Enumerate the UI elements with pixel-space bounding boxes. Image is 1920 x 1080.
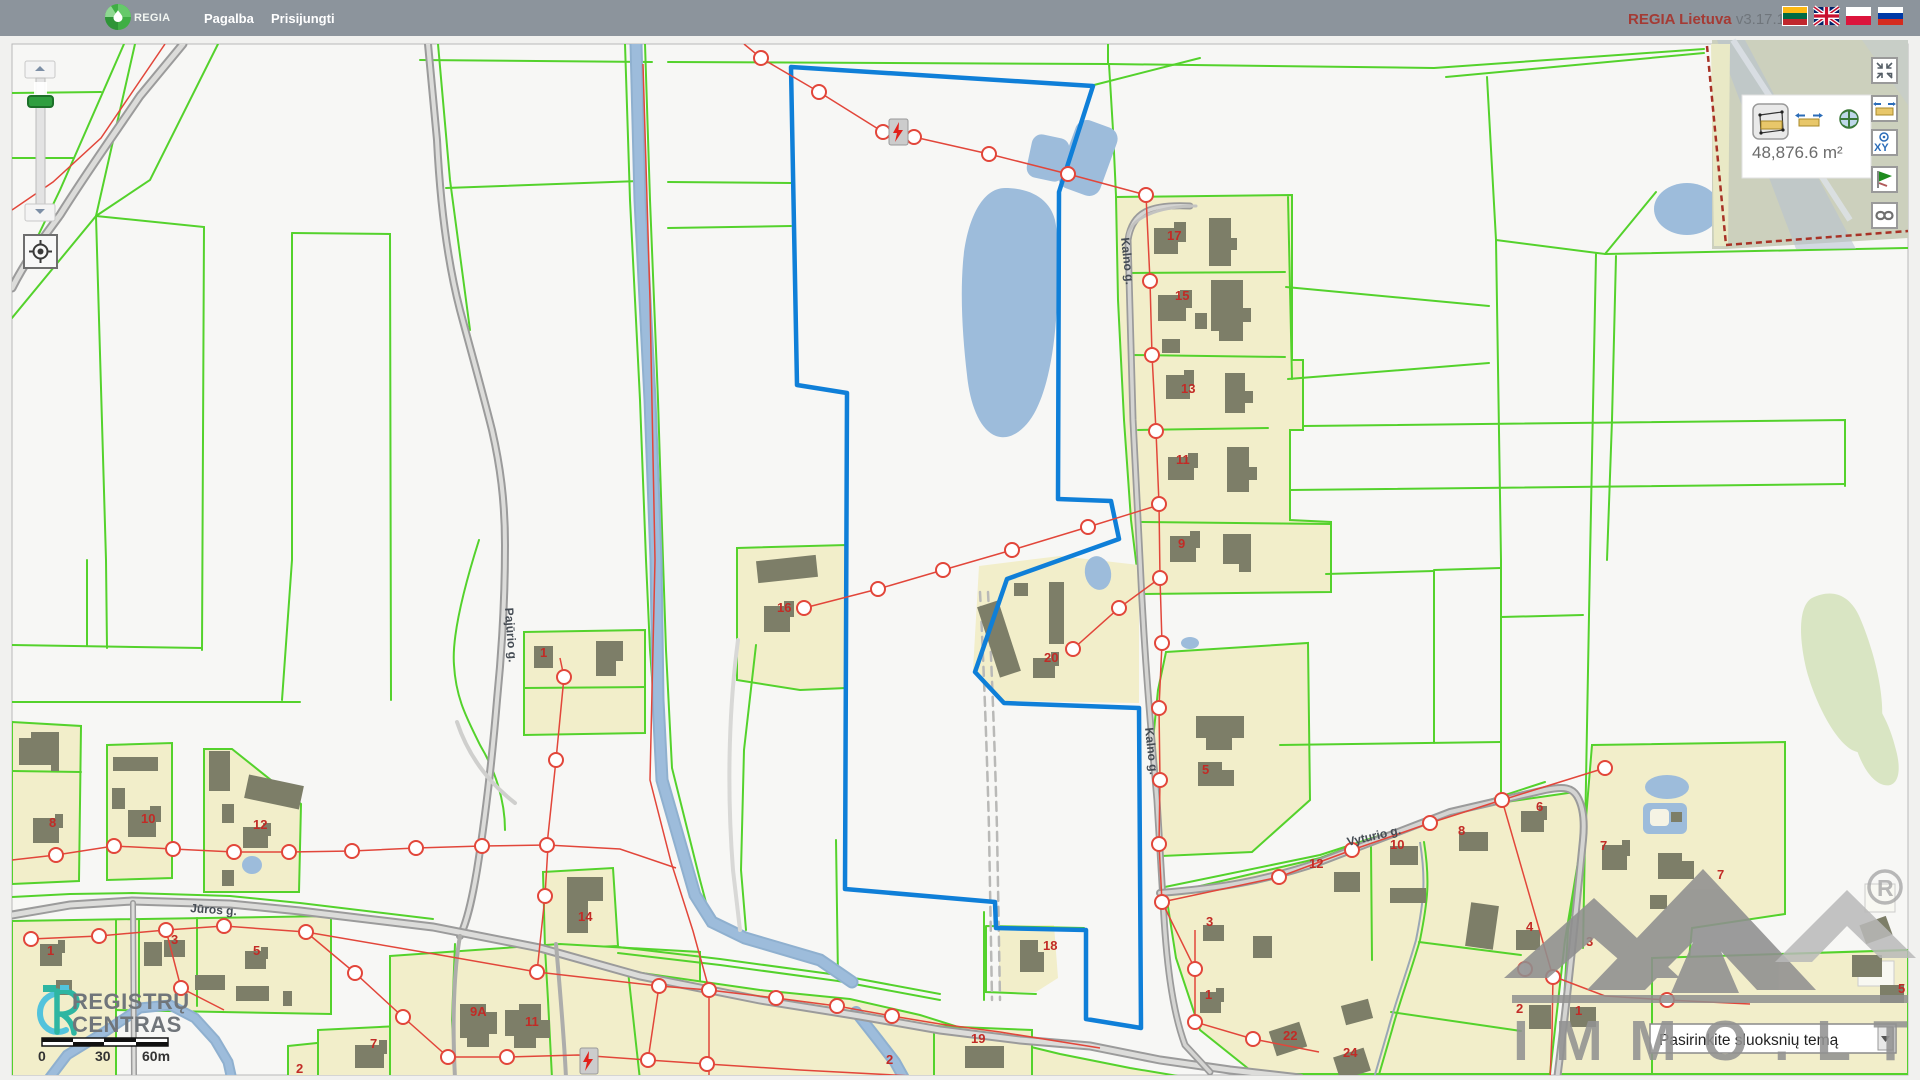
svg-text:3: 3 <box>1206 914 1213 929</box>
svg-text:1: 1 <box>540 645 547 660</box>
svg-text:7: 7 <box>370 1036 377 1051</box>
svg-text:3: 3 <box>171 932 178 947</box>
svg-text:7: 7 <box>1717 867 1724 882</box>
svg-text:17: 17 <box>1167 228 1181 243</box>
svg-text:30: 30 <box>95 1048 111 1064</box>
svg-text:REGIA: REGIA <box>134 12 170 24</box>
svg-text:8: 8 <box>49 815 56 830</box>
svg-text:1: 1 <box>47 943 54 958</box>
svg-text:CENTRAS: CENTRAS <box>72 1012 182 1037</box>
svg-text:R: R <box>1877 875 1894 901</box>
svg-text:Prisijungti: Prisijungti <box>271 11 335 26</box>
svg-text:16: 16 <box>777 600 791 615</box>
svg-text:5: 5 <box>253 943 260 958</box>
svg-text:19: 19 <box>971 1031 985 1046</box>
svg-text:2: 2 <box>886 1052 893 1067</box>
svg-text:22: 22 <box>1283 1028 1297 1043</box>
svg-text:Pagalba: Pagalba <box>204 11 255 26</box>
svg-text:11: 11 <box>1176 452 1190 467</box>
svg-text:REGIA Lietuva v3.17.1: REGIA Lietuva v3.17.1 <box>1628 11 1785 28</box>
svg-text:18: 18 <box>1043 938 1057 953</box>
svg-text:48,876.6 m²: 48,876.6 m² <box>1752 143 1843 162</box>
svg-text:Pasirinkite sluoksnių temą: Pasirinkite sluoksnių temą <box>1659 1032 1839 1049</box>
svg-text:24: 24 <box>1343 1045 1358 1060</box>
svg-text:12: 12 <box>253 817 267 832</box>
svg-text:2: 2 <box>296 1061 303 1076</box>
svg-text:5: 5 <box>1202 762 1209 777</box>
svg-text:12: 12 <box>1309 856 1323 871</box>
svg-text:10: 10 <box>141 811 155 826</box>
svg-text:REGISTRŲ: REGISTRŲ <box>72 989 190 1014</box>
svg-text:15: 15 <box>1175 288 1189 303</box>
svg-text:0: 0 <box>38 1048 46 1064</box>
svg-text:9A: 9A <box>470 1004 487 1019</box>
svg-text:4: 4 <box>1526 919 1534 934</box>
svg-text:20: 20 <box>1044 650 1058 665</box>
svg-text:8: 8 <box>1458 823 1465 838</box>
svg-text:6: 6 <box>1536 799 1543 814</box>
svg-text:13: 13 <box>1181 381 1195 396</box>
svg-text:7: 7 <box>1600 838 1607 853</box>
svg-text:1: 1 <box>1205 987 1212 1002</box>
svg-text:5: 5 <box>1898 981 1905 996</box>
svg-text:XY: XY <box>1874 142 1889 154</box>
svg-text:60m: 60m <box>142 1048 170 1064</box>
svg-text:14: 14 <box>578 909 593 924</box>
svg-text:10: 10 <box>1390 837 1404 852</box>
svg-text:11: 11 <box>525 1014 539 1029</box>
svg-text:9: 9 <box>1178 536 1185 551</box>
